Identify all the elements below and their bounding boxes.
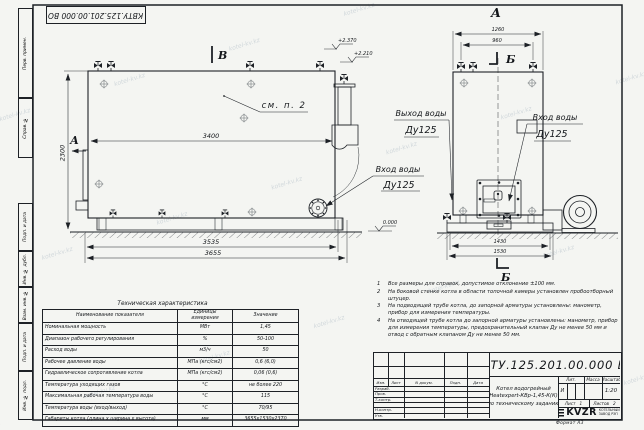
- target-mark-icon: [460, 79, 469, 88]
- row-value: 1,45: [233, 323, 299, 335]
- row-name: Рабочее давление воды: [43, 357, 178, 369]
- scale-value: 1:20: [602, 383, 620, 399]
- svg-text:Ду125: Ду125: [382, 180, 414, 191]
- frame-col-label: Подп. и дата: [23, 212, 28, 242]
- sheet-label: Лист: [565, 401, 576, 406]
- table-row: Габариты котла (длина х ширина х высота)…: [43, 415, 299, 427]
- product-name-line3: по техническому заданию: [489, 401, 558, 408]
- row-units: м3/ч: [178, 346, 233, 358]
- col-header-name: Наименование показателя: [43, 310, 178, 323]
- table-row: Диапазон рабочего регулирования%50-100: [43, 334, 299, 346]
- valve-icon: [457, 63, 465, 73]
- chimney-assembly: [332, 75, 359, 198]
- svg-text:3535: 3535: [203, 238, 220, 246]
- inlet-label-front: Вход воды Ду125: [326, 165, 424, 206]
- col-header-value: Значение: [233, 310, 299, 323]
- table-row: Номинальная мощностьМВт1,45: [43, 323, 299, 335]
- note-item: 1Все размеры для справок, допустимое отк…: [377, 281, 620, 288]
- note-item: 2На боковой стенке котла в области топоч…: [377, 289, 620, 303]
- tech-table-header: Наименование показателя Единицы измерени…: [43, 310, 299, 323]
- svg-text:2300: 2300: [59, 145, 67, 162]
- frame-col-label: Инв. № дубл.: [23, 254, 28, 284]
- rev-col-data: Дата: [467, 378, 489, 386]
- target-mark-icon: [95, 180, 104, 189]
- row-name: Гидравлическое сопротивление котла: [43, 369, 178, 381]
- rev-col-doc: N докум.: [404, 378, 444, 386]
- row-units: %: [178, 334, 233, 346]
- valve-icon: [529, 63, 537, 73]
- dim-3400: 3400: [91, 132, 332, 141]
- elevation-zero: 0.000: [368, 220, 397, 231]
- valve-icon: [246, 62, 254, 72]
- row-name: Номинальная мощность: [43, 323, 178, 335]
- row-units: °С: [178, 403, 233, 415]
- rev-col-list: Лист: [388, 378, 404, 386]
- row-units: мм: [178, 415, 233, 427]
- svg-text:1530: 1530: [494, 249, 507, 255]
- row-value: 50-100: [233, 334, 299, 346]
- row-value: 3655х1530х2370: [233, 415, 299, 427]
- valve-icon: [316, 62, 324, 72]
- svg-text:3655: 3655: [205, 249, 222, 257]
- row-units: °С: [178, 380, 233, 392]
- frame-col-vzam-inv: Взам. инв. №: [18, 287, 33, 323]
- section-b-top-label: Б: [505, 53, 516, 66]
- wall-channel: [83, 150, 88, 200]
- sheets-value: 2: [613, 401, 616, 406]
- rev-col-izm: Изм.: [374, 378, 388, 386]
- target-mark-icon: [528, 79, 537, 88]
- top-stamp: КВТУ.125.201.00.000 ВО: [46, 6, 146, 24]
- svg-text:см. п. 2: см. п. 2: [262, 101, 307, 111]
- row-name: Температура уходящих газов: [43, 380, 178, 392]
- frame-col-inv-podl: Инв. № подл.: [18, 371, 33, 420]
- skid-front: [97, 218, 343, 230]
- elevation-2210: +2.210: [340, 51, 373, 62]
- table-row: Максимальная рабочая температура воды°С1…: [43, 392, 299, 404]
- row-name: Расход воды: [43, 346, 178, 358]
- frame-col-sprav-n: Справ. №: [18, 98, 33, 158]
- svg-text:Вход воды: Вход воды: [376, 165, 421, 174]
- boiler-body-front: [88, 71, 335, 218]
- lit-header: Лит.: [558, 376, 584, 383]
- sheet-value: 1: [579, 401, 582, 406]
- note-item: 4На отводящей трубе котла до запорной ар…: [377, 318, 620, 339]
- row-units: °С: [178, 392, 233, 404]
- kvzr-flag-icon: [558, 409, 564, 417]
- blower-fan: [543, 196, 597, 233]
- frame-col-label: Подп. и дата: [23, 332, 28, 362]
- table-row: Рабочее давление водыМПа (кгс/см2)0,6 (6…: [43, 357, 299, 369]
- outlet-pipe-valve-icon: [443, 214, 451, 224]
- row-value: 70/95: [233, 403, 299, 415]
- door-handle-bar: [484, 199, 495, 202]
- row-units: МПа (кгс/см2): [178, 369, 233, 381]
- view-a-label: А: [490, 5, 501, 20]
- target-mark-icon: [248, 208, 257, 217]
- svg-text:960: 960: [492, 38, 502, 44]
- table-row: Расход водым3/ч50: [43, 346, 299, 358]
- product-name-line1: Котел водогрейный: [496, 386, 550, 393]
- sheets-cell: Листов 2: [589, 399, 620, 407]
- drain-valve-icon: [159, 210, 166, 218]
- row-units: МВт: [178, 323, 233, 335]
- org-name-line2: ЗАВОД РЭП: [599, 413, 620, 417]
- table-row: Гидравлическое сопротивление котлаМПа (к…: [43, 369, 299, 381]
- inlet-flange-icon: [309, 199, 327, 217]
- note-number: 2: [377, 289, 388, 303]
- skid-side: [447, 215, 553, 232]
- valve-icon: [340, 75, 348, 85]
- inlet-label-side: Вход воды Ду125: [509, 113, 583, 201]
- target-mark-icon: [247, 80, 256, 89]
- svg-text:1430: 1430: [494, 239, 507, 245]
- product-name-line2: Heatexpert-КВр-1,45-К(К): [489, 393, 557, 400]
- table-row: Температура воды (вход/выход)°С70/95: [43, 403, 299, 415]
- valve-icon: [94, 62, 102, 72]
- svg-text:1260: 1260: [492, 27, 505, 33]
- frame-col-podp-data-2: Подп. и дата: [18, 323, 33, 371]
- svg-text:Ду125: Ду125: [535, 129, 567, 140]
- scale-header: Масштаб: [602, 376, 620, 383]
- note-number: 1: [377, 281, 388, 288]
- target-mark-icon: [240, 114, 249, 123]
- valve-icon: [469, 63, 477, 73]
- see-note-callout: см. п. 2: [223, 95, 308, 112]
- row-value: 0,06 (0,6): [233, 369, 299, 381]
- svg-text:Ду125: Ду125: [404, 125, 436, 136]
- row-value: 50: [233, 346, 299, 358]
- frame-col-label: Перв. примен.: [23, 37, 28, 70]
- drawing-sheet: kotel-kv.kzkotel-kv.kzkotel-kv.kzkotel-k…: [0, 0, 644, 430]
- row-value: 115: [233, 392, 299, 404]
- doc-number: КВТУ.125.201.00.000 ВО: [489, 353, 620, 376]
- frame-col-label: Взам. инв. №: [23, 290, 28, 320]
- row-name: Диапазон рабочего регулирования: [43, 334, 178, 346]
- row-name: Температура воды (вход/выход): [43, 403, 178, 415]
- format-note: Формат А3: [556, 421, 584, 426]
- svg-text:+2.370: +2.370: [338, 38, 357, 44]
- tech-table-title: Техническая характеристика: [42, 301, 283, 309]
- frame-col-label: Справ. №: [23, 117, 28, 139]
- side-view: А: [394, 5, 618, 284]
- section-a-label: А: [69, 134, 79, 147]
- org-cell: KVZR КОТЕЛЬНЫЙ ЗАВОД РЭП: [558, 407, 620, 418]
- note-text: На боковой стенке котла в области топочн…: [388, 289, 620, 303]
- target-mark-icon: [100, 80, 109, 89]
- drain-valve-icon: [222, 210, 229, 218]
- sheet-cell: Лист 1: [558, 399, 589, 407]
- frame-col-label: Инв. № подл.: [23, 380, 28, 411]
- side-stub: [76, 201, 88, 210]
- org-name: КОТЕЛЬНЫЙ ЗАВОД РЭП: [599, 409, 620, 416]
- section-v-label: В: [217, 49, 227, 62]
- svg-text:Выход воды: Выход воды: [396, 109, 447, 118]
- svg-text:Вход воды: Вход воды: [533, 113, 578, 122]
- title-block: Изм. Лист N докум. Подп. Дата Разраб. Пр…: [373, 352, 622, 420]
- section-b-bottom-mark: [497, 258, 509, 268]
- note-item: 3На подводящей трубе котла, до запорной …: [377, 303, 620, 317]
- target-mark-icon: [459, 207, 468, 216]
- product-name: Котел водогрейный Heatexpert-КВр-1,45-К(…: [489, 376, 558, 418]
- note-text: На отводящей трубе котла до запорной арм…: [388, 318, 620, 339]
- frame-col-podp-data-1: Подп. и дата: [18, 203, 33, 251]
- row-name: Максимальная рабочая температура воды: [43, 392, 178, 404]
- rev-col-podp: Подп.: [444, 378, 467, 386]
- kvzr-logo: KVZR: [566, 407, 597, 418]
- lit-value: И: [558, 383, 567, 399]
- elevation-2370: +2.370: [324, 38, 357, 49]
- svg-text:0.000: 0.000: [383, 220, 397, 226]
- section-b-top-mark: [489, 52, 497, 64]
- sheets-label: Листов: [593, 401, 609, 406]
- svg-text:+2.210: +2.210: [354, 51, 373, 57]
- row-name: Габариты котла (длина х ширина х высота): [43, 415, 178, 427]
- col-header-units: Единицы измерения: [178, 310, 233, 323]
- svg-text:3400: 3400: [203, 132, 220, 140]
- tech-table: Техническая характеристика Наименование …: [42, 301, 283, 427]
- note-number: 3: [377, 303, 388, 317]
- front-view: 3400 2300 3535 3655 В А: [59, 38, 425, 263]
- row-value: не более 220: [233, 380, 299, 392]
- ground-hatch-side: [437, 233, 618, 239]
- furnace-door: [477, 180, 521, 218]
- mass-header: Масса: [584, 376, 602, 383]
- note-number: 4: [377, 318, 388, 339]
- frame-col-perv-primen: Перв. примен.: [18, 8, 33, 98]
- drain-valve-icon: [110, 210, 117, 218]
- notes-list: 1Все размеры для справок, допустимое отк…: [377, 281, 620, 340]
- row-value: 0,6 (6,0): [233, 357, 299, 369]
- rev-row-utv: Утв.: [374, 413, 405, 418]
- note-text: На подводящей трубе котла, до запорной а…: [388, 303, 620, 317]
- table-row: Температура уходящих газов°Сне более 220: [43, 380, 299, 392]
- target-mark-icon: [528, 207, 537, 216]
- frame-col-inv-dubl: Инв. № дубл.: [18, 251, 33, 287]
- note-text: Все размеры для справок, допустимое откл…: [388, 281, 620, 288]
- top-stamp-text: КВТУ.125.201.00.000 ВО: [48, 11, 143, 20]
- valve-icon: [107, 62, 115, 72]
- row-units: МПа (кгс/см2): [178, 357, 233, 369]
